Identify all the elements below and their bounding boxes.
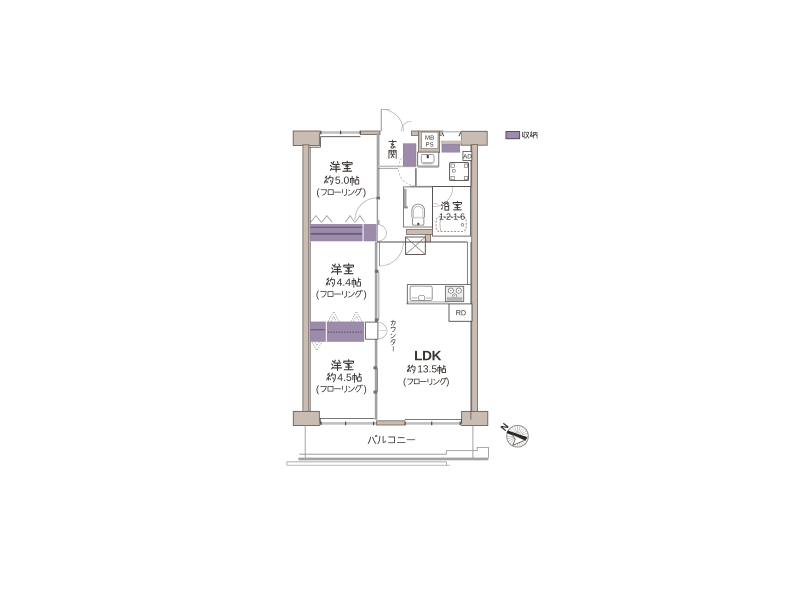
svg-text:): ) bbox=[363, 188, 366, 199]
svg-text:1-2-1-6: 1-2-1-6 bbox=[439, 212, 465, 222]
svg-text:): ) bbox=[446, 376, 449, 387]
svg-text:AD: AD bbox=[463, 153, 472, 160]
svg-text:4.5: 4.5 bbox=[337, 373, 352, 384]
svg-text:): ) bbox=[363, 384, 366, 395]
svg-text:): ) bbox=[363, 290, 366, 301]
svg-text:5.0: 5.0 bbox=[335, 176, 350, 187]
svg-text:PS: PS bbox=[426, 141, 434, 148]
svg-text:RD: RD bbox=[456, 308, 466, 317]
svg-text:13.5: 13.5 bbox=[417, 364, 437, 375]
svg-text:LDK: LDK bbox=[414, 348, 442, 363]
svg-text:4.4: 4.4 bbox=[337, 278, 352, 289]
